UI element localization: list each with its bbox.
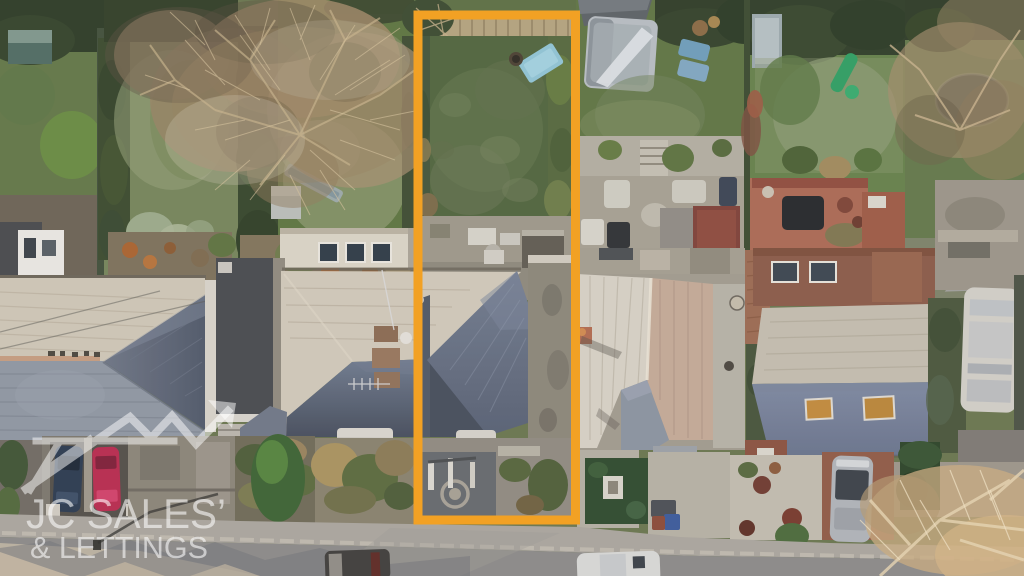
svg-text:& LETTINGS: & LETTINGS [30,530,208,565]
